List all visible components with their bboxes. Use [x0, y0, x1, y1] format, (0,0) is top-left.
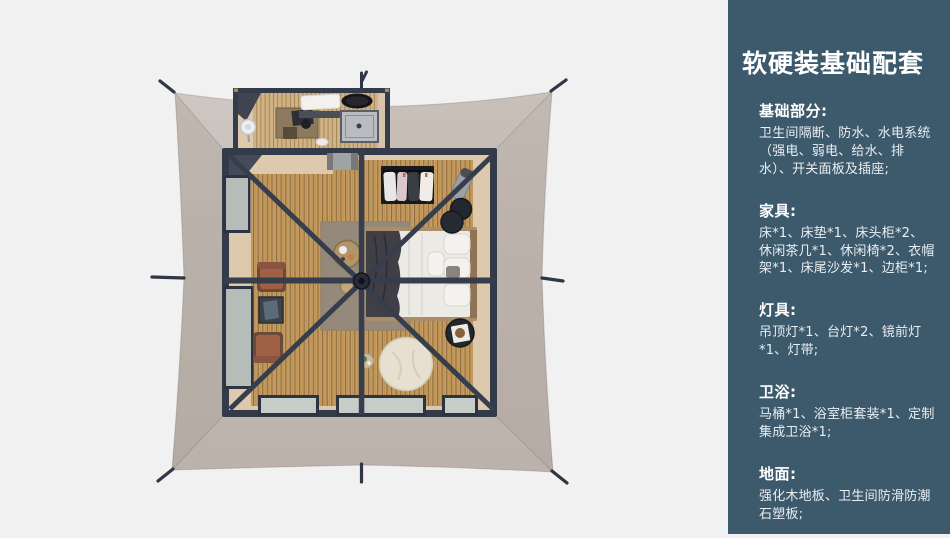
window-bottom-3 — [442, 395, 478, 416]
accent-pillow — [446, 266, 460, 278]
window-bottom-1 — [258, 395, 319, 416]
counter-strip — [299, 111, 345, 118]
spec-sections: 基础部分: 卫生间隔断、防水、水电系统（强电、弱电、给水、排水）、开关面板及插座… — [759, 100, 935, 524]
panel-title: 软硬装基础配套 — [742, 50, 935, 79]
spec-body-furniture: 床*1、床垫*1、床头柜*2、休闲茶几*1、休闲椅*2、衣帽架*1、床尾沙发*1… — [759, 225, 935, 279]
window-left-2 — [224, 286, 254, 389]
spec-heading-flooring: 地面: — [759, 463, 935, 484]
window-left-1 — [224, 175, 251, 233]
roof-beams — [224, 150, 495, 415]
spec-body-basics: 卫生间隔断、防水、水电系统（强电、弱电、给水、排水）、开关面板及插座; — [759, 125, 935, 179]
spec-section-flooring: 地面: 强化木地板、卫生间防滑防潮石塑板; — [759, 463, 935, 524]
spec-section-furniture: 家具: 床*1、床垫*1、床头柜*2、休闲茶几*1、休闲椅*2、衣帽架*1、床尾… — [759, 200, 935, 279]
spec-section-basics: 基础部分: 卫生间隔断、防水、水电系统（强电、弱电、给水、排水）、开关面板及插座… — [759, 100, 935, 179]
bed — [363, 227, 477, 321]
bathroom-sink — [342, 94, 373, 109]
skylight — [301, 94, 341, 110]
tent-render-stage — [0, 0, 728, 534]
spec-heading-lighting: 灯具: — [759, 299, 935, 320]
side-table-left — [259, 297, 283, 323]
spec-panel: 软硬装基础配套 基础部分: 卫生间隔断、防水、水电系统（强电、弱电、给水、排水）… — [728, 0, 950, 534]
spec-heading-furniture: 家具: — [759, 200, 935, 221]
bathroom-unit — [233, 88, 390, 152]
toilet — [316, 138, 328, 145]
spec-heading-basics: 基础部分: — [759, 100, 935, 121]
entry-corridor — [327, 153, 358, 170]
side-table-right — [446, 319, 474, 347]
spec-body-bathroom: 马桶*1、浴室柜套装*1、定制集成卫浴*1; — [759, 406, 935, 442]
spec-body-flooring: 强化木地板、卫生间防滑防潮石塑板; — [759, 488, 935, 524]
shower-tray — [341, 111, 378, 142]
main-room — [222, 148, 497, 417]
clothes-rack — [381, 166, 434, 204]
spec-heading-bathroom: 卫浴: — [759, 381, 935, 402]
spec-section-lighting: 灯具: 吊顶灯*1、台灯*2、镜前灯*1、灯带; — [759, 299, 935, 360]
spec-section-bathroom: 卫浴: 马桶*1、浴室柜套装*1、定制集成卫浴*1; — [759, 381, 935, 442]
window-bottom-2 — [336, 395, 426, 416]
lounge-chair-1 — [257, 262, 286, 292]
spec-body-lighting: 吊顶灯*1、台灯*2、镜前灯*1、灯带; — [759, 324, 935, 360]
tent-floorplan-render — [0, 0, 728, 534]
coffee-table — [334, 241, 361, 268]
lounge-chair-2 — [253, 332, 283, 363]
